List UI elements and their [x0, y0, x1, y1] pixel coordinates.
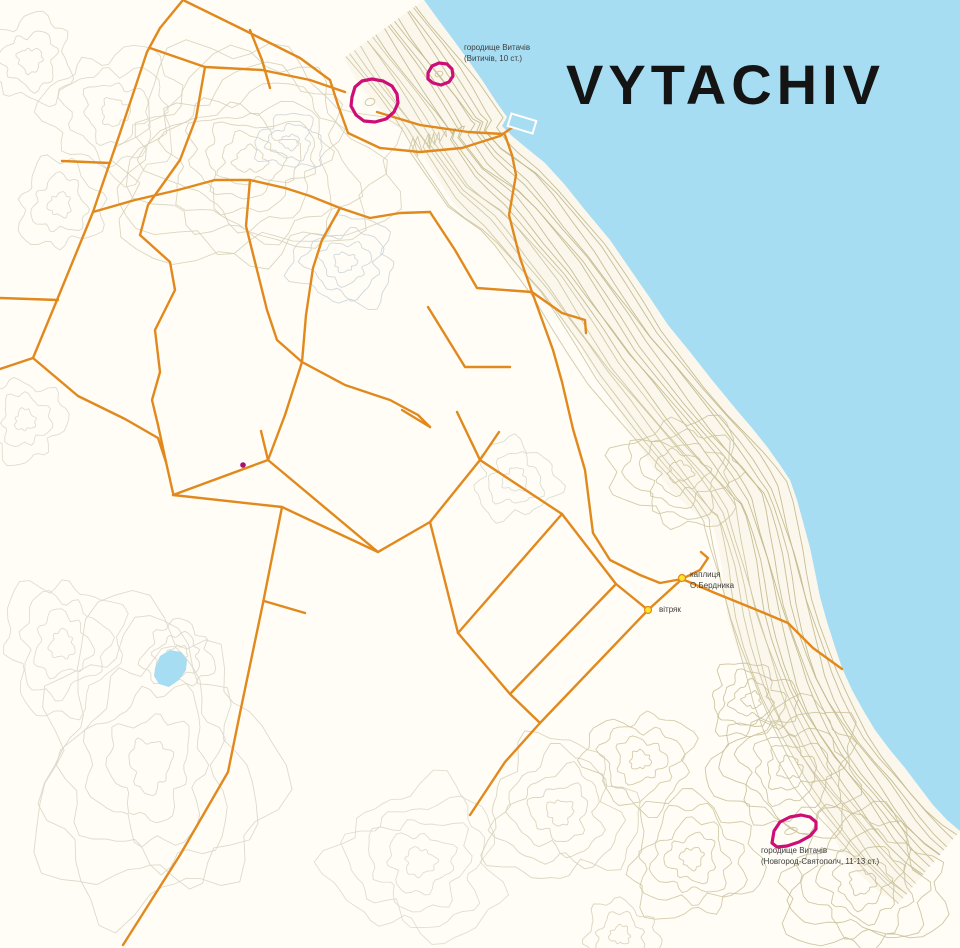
label-hillfort-south-line1: городище Витачів	[761, 845, 879, 856]
map-canvas	[0, 0, 960, 948]
windmill-marker	[645, 607, 652, 614]
map-title: VYTACHIV	[566, 52, 885, 117]
label-windmill-line1: вітряк	[659, 604, 681, 615]
lake	[154, 650, 187, 687]
label-windmill: вітряк	[659, 604, 681, 615]
label-hillfort-south-line2: (Новгород-Святополч, 11-13 ст.)	[761, 856, 879, 867]
site-point-marker	[240, 462, 246, 468]
label-hillfort-north-line2: (Витичів, 10 ст.)	[464, 53, 530, 64]
chapel-marker	[679, 575, 686, 582]
label-hillfort-north: городище Витачів (Витичів, 10 ст.)	[464, 42, 530, 64]
label-hillfort-south: городище Витачів (Новгород-Святополч, 11…	[761, 845, 879, 867]
label-hillfort-north-line1: городище Витачів	[464, 42, 530, 53]
label-chapel-line2: О.Бердника	[690, 580, 734, 591]
label-chapel: каплиця О.Бердника	[690, 569, 734, 591]
map-root: VYTACHIV городище Витачів (Витичів, 10 с…	[0, 0, 960, 948]
label-chapel-line1: каплиця	[690, 569, 734, 580]
